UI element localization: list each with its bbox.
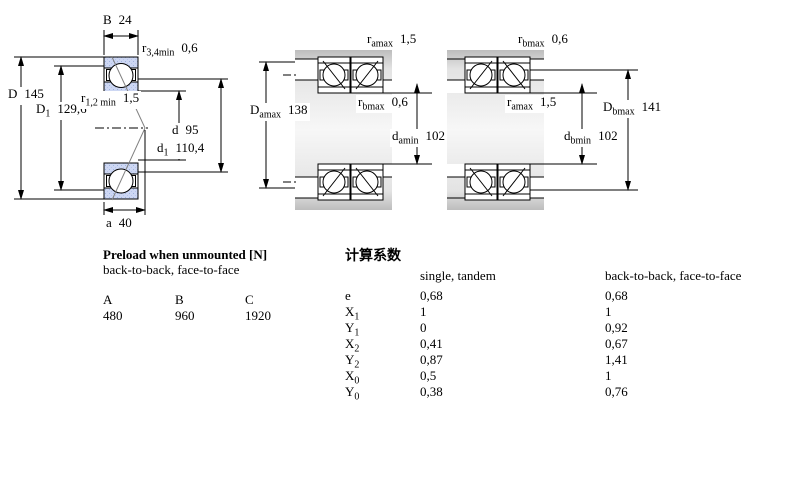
preload-subtitle: back-to-back, face-to-face	[103, 263, 325, 277]
factors-col-single: single, tandem	[420, 269, 605, 283]
calculation-factors-section: 计算系数 single, tandem back-to-back, face-t…	[345, 249, 775, 400]
factor-row-x2: X20,410,67	[345, 336, 775, 352]
preload-col-c: C	[245, 292, 325, 308]
preload-title: Preload when unmounted [N]	[103, 247, 325, 262]
dim-label-d1: d1110,4	[155, 141, 206, 159]
dim-label-r12min: r1,2 min1,5	[79, 91, 141, 109]
dim-label-rbmax-right: rbmax0,6	[516, 32, 570, 50]
factor-row-e: e0,680,68	[345, 288, 775, 304]
factors-title: 计算系数	[345, 249, 775, 265]
dim-label-dbmin: dbmin102	[562, 129, 620, 147]
preload-section: Preload when unmounted [N] back-to-back,…	[103, 247, 325, 324]
dim-label-ramax-middle: ramax1,5	[365, 32, 418, 50]
factor-row-y0: Y00,380,76	[345, 384, 775, 400]
factor-row-x0: X00,51	[345, 368, 775, 384]
preload-values-row: 480 960 1920	[103, 308, 325, 324]
preload-value-a: 480	[103, 308, 175, 324]
preload-column-headers: A B C	[103, 292, 325, 308]
preload-col-b: B	[175, 292, 245, 308]
factor-row-y1: Y100,92	[345, 320, 775, 336]
preload-value-c: 1920	[245, 308, 325, 324]
dim-label-Damax: Damax138	[248, 103, 310, 121]
dim-label-a: a40	[106, 216, 132, 234]
factors-col-paired: back-to-back, face-to-face	[605, 269, 775, 283]
factor-row-y2: Y20,871,41	[345, 352, 775, 368]
preload-col-a: A	[103, 292, 175, 308]
bearing-catalog-figure: B24 r3,4min0,6 D145 D1129,6 r1,2 min1,5 …	[0, 0, 800, 500]
factor-row-x1: X111	[345, 304, 775, 320]
dim-label-d: d95	[170, 123, 201, 141]
dim-label-B: B24	[103, 13, 132, 31]
dim-label-ramax-right: ramax1,5	[505, 95, 558, 113]
preload-value-b: 960	[175, 308, 245, 324]
dim-label-r34min: r3,4min0,6	[142, 41, 198, 59]
dim-label-damin: damin102	[390, 129, 447, 147]
factors-column-headers: single, tandem back-to-back, face-to-fac…	[345, 269, 775, 283]
dim-label-Dbmax: Dbmax141	[601, 100, 663, 118]
dim-label-rbmax-middle: rbmax0,6	[356, 95, 410, 113]
factors-rows: e0,680,68 X111 Y100,92 X20,410,67 Y20,87…	[345, 288, 775, 400]
